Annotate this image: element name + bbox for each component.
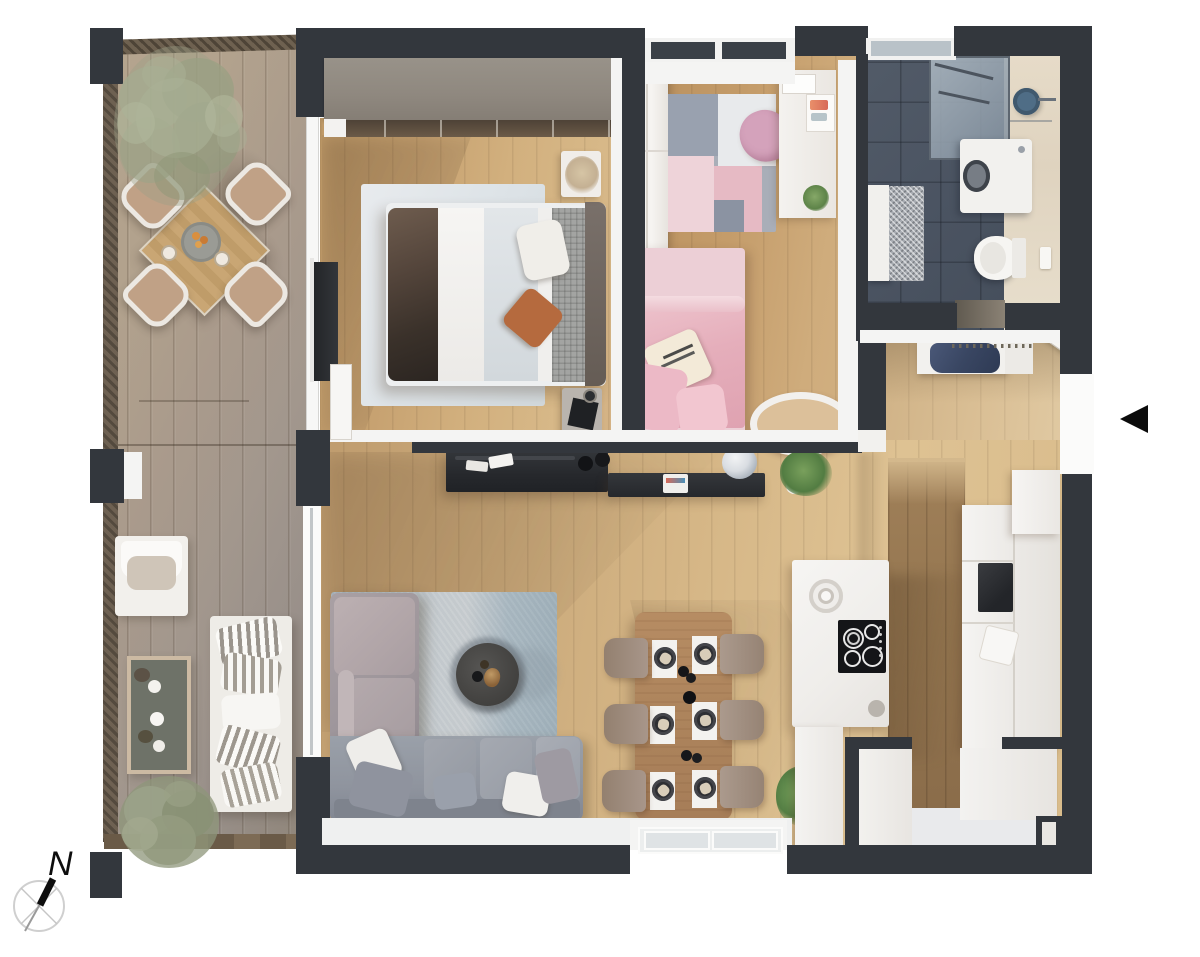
svg-text:N: N [48,845,73,883]
